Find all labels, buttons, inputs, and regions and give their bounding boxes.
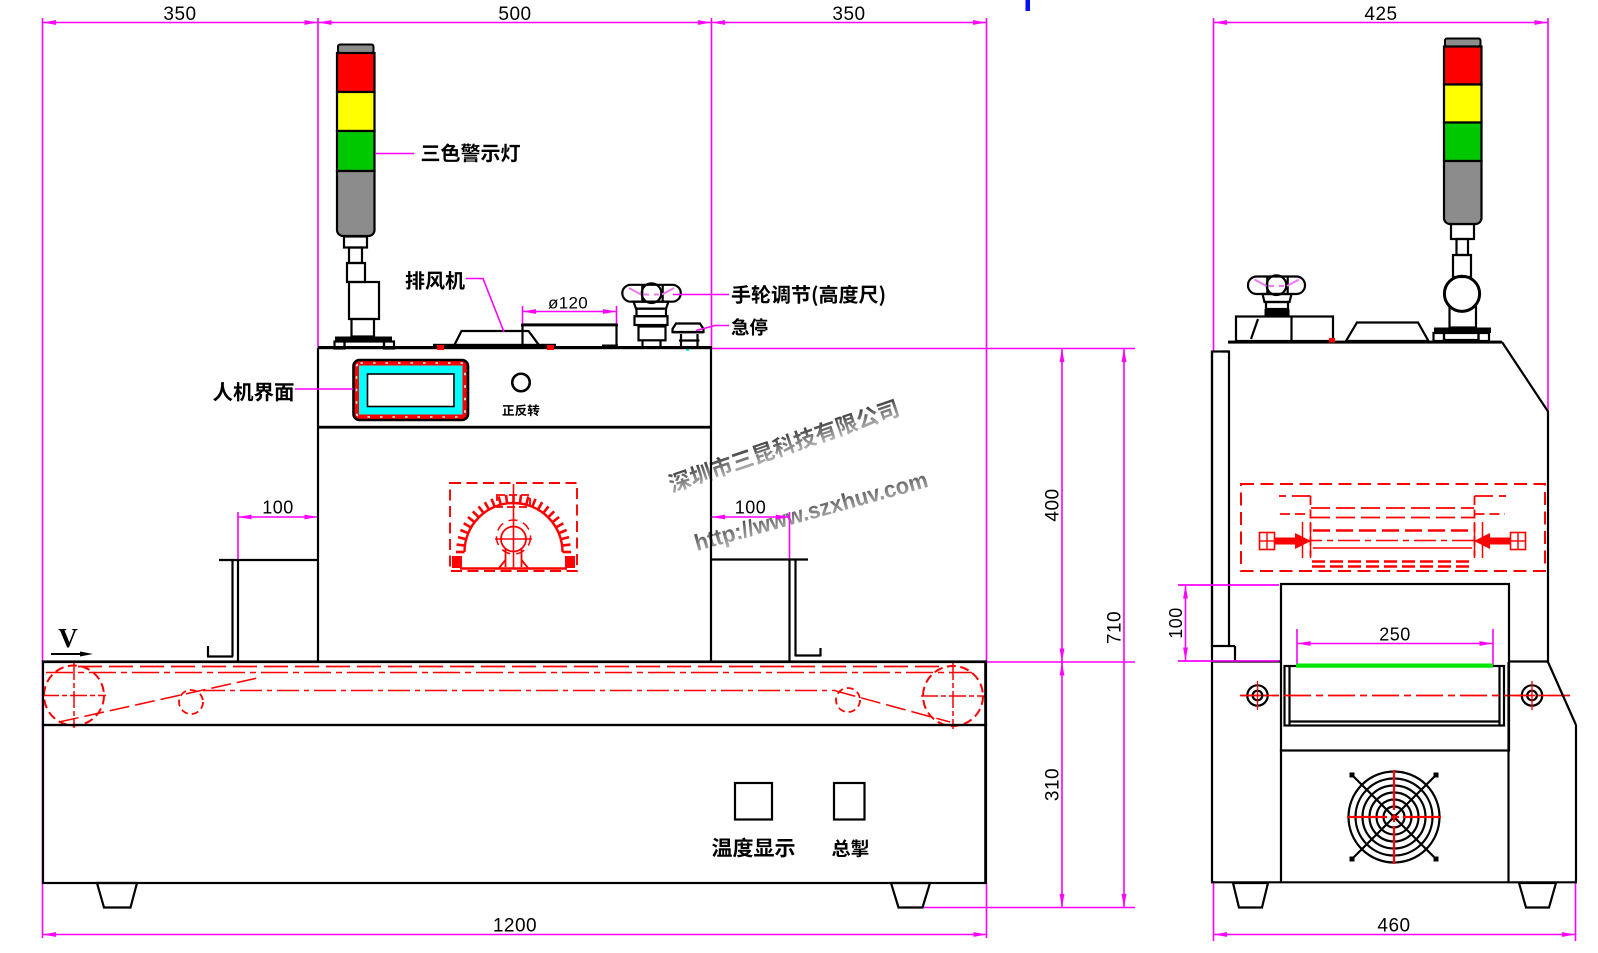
svg-text:100: 100 <box>735 498 767 518</box>
svg-text:V: V <box>58 623 78 653</box>
svg-text:ø120: ø120 <box>548 294 588 313</box>
svg-text:710: 710 <box>1105 611 1126 644</box>
svg-text:100: 100 <box>262 498 294 518</box>
svg-text:350: 350 <box>832 4 865 25</box>
svg-text:http://www.szxhuv.com: http://www.szxhuv.com <box>691 466 930 555</box>
svg-text:1200: 1200 <box>493 916 537 937</box>
svg-text:400: 400 <box>1043 488 1064 521</box>
svg-text:100: 100 <box>1166 607 1186 639</box>
svg-text:500: 500 <box>498 4 531 25</box>
svg-text:425: 425 <box>1364 4 1397 25</box>
svg-text:310: 310 <box>1043 768 1064 801</box>
svg-text:460: 460 <box>1377 916 1410 937</box>
svg-text:250: 250 <box>1379 625 1411 645</box>
svg-text:350: 350 <box>163 4 196 25</box>
